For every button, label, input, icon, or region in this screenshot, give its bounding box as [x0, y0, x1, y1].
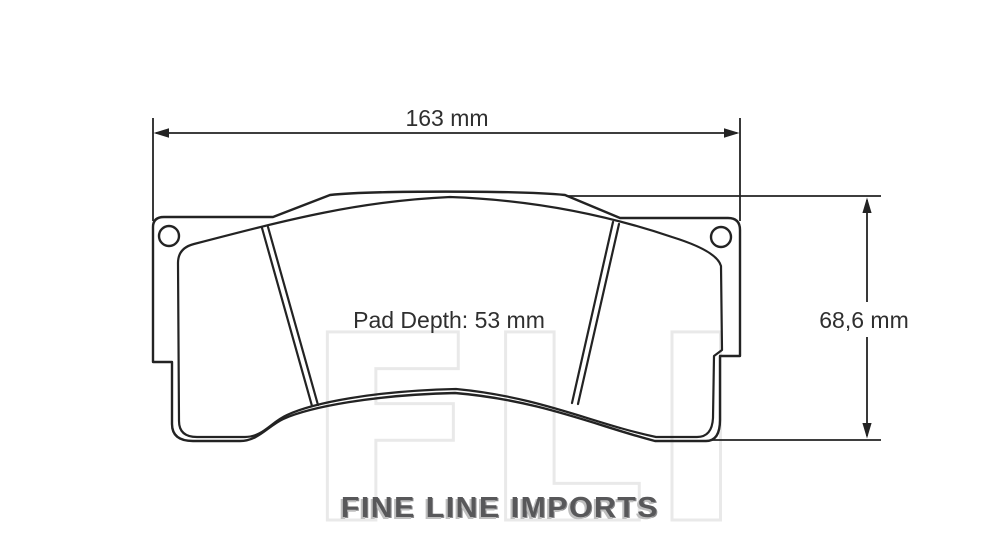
- width-dimension-label: 163 mm: [405, 105, 488, 131]
- height-dimension-label: 68,6 mm: [819, 307, 908, 333]
- height-arrow-bottom: [862, 423, 871, 439]
- technical-drawing-page: FLI 1: [0, 0, 1000, 538]
- height-arrow-top: [862, 198, 871, 214]
- width-dimension: [153, 118, 740, 221]
- mounting-hole-right: [711, 227, 731, 247]
- brake-pad-technical-drawing: FLI 1: [0, 0, 1000, 538]
- width-arrow-left: [154, 128, 170, 138]
- mounting-hole-left: [159, 226, 179, 246]
- pad-depth-label: Pad Depth: 53 mm: [353, 307, 545, 333]
- brand-logo-text: FINE LINE IMPORTS: [341, 492, 659, 525]
- width-arrow-right: [724, 128, 740, 138]
- brand-footer: FINE LINE IMPORTS: [0, 492, 1000, 525]
